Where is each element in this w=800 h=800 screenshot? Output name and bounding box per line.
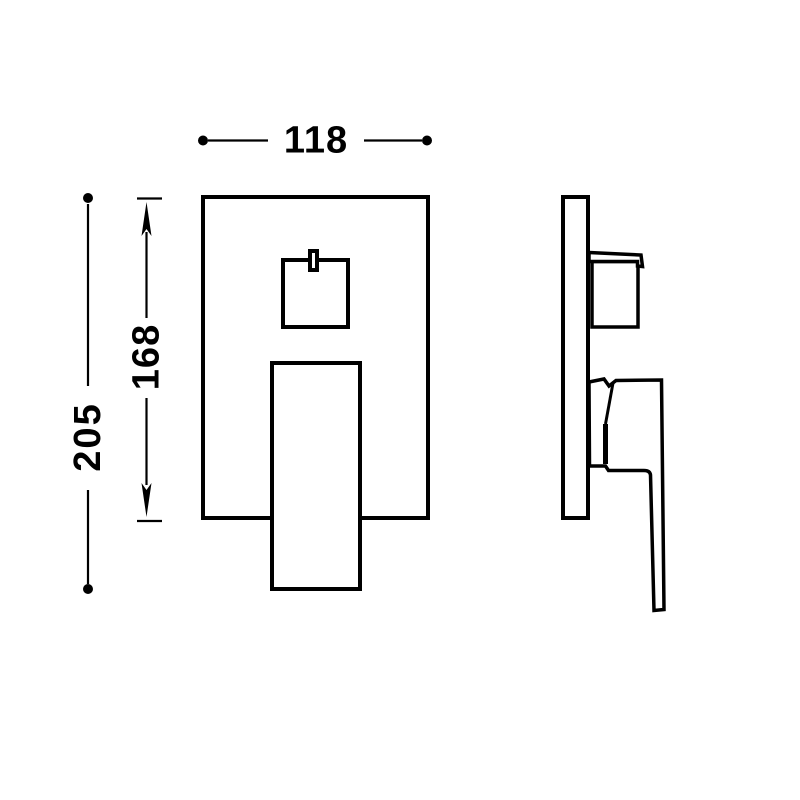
dimension-width: 118 [198, 120, 432, 162]
front-view [203, 197, 428, 589]
arrowhead-up-icon [142, 202, 152, 236]
front-lever-handle [272, 363, 360, 589]
dimension-dot-left [198, 136, 208, 146]
front-diverter-indicator [310, 251, 317, 270]
dimension-overall-height-label: 205 [67, 402, 109, 471]
dimension-dot-bottom [83, 584, 93, 594]
side-plate [563, 197, 588, 518]
dimension-drawing: 118 205 168 [0, 0, 800, 800]
dimension-dot-top [83, 193, 93, 203]
drawing-svg: 118 205 168 [0, 0, 800, 800]
dimension-width-label: 118 [284, 120, 348, 162]
dimension-plate-height: 168 [126, 199, 168, 522]
side-lever-handle [589, 379, 664, 611]
dimension-dot-right [422, 136, 432, 146]
arrowhead-down-icon [142, 483, 152, 517]
dimension-plate-height-label: 168 [126, 324, 168, 390]
side-view [563, 197, 664, 611]
side-diverter-body [592, 262, 638, 328]
dimension-overall-height: 205 [67, 193, 109, 594]
